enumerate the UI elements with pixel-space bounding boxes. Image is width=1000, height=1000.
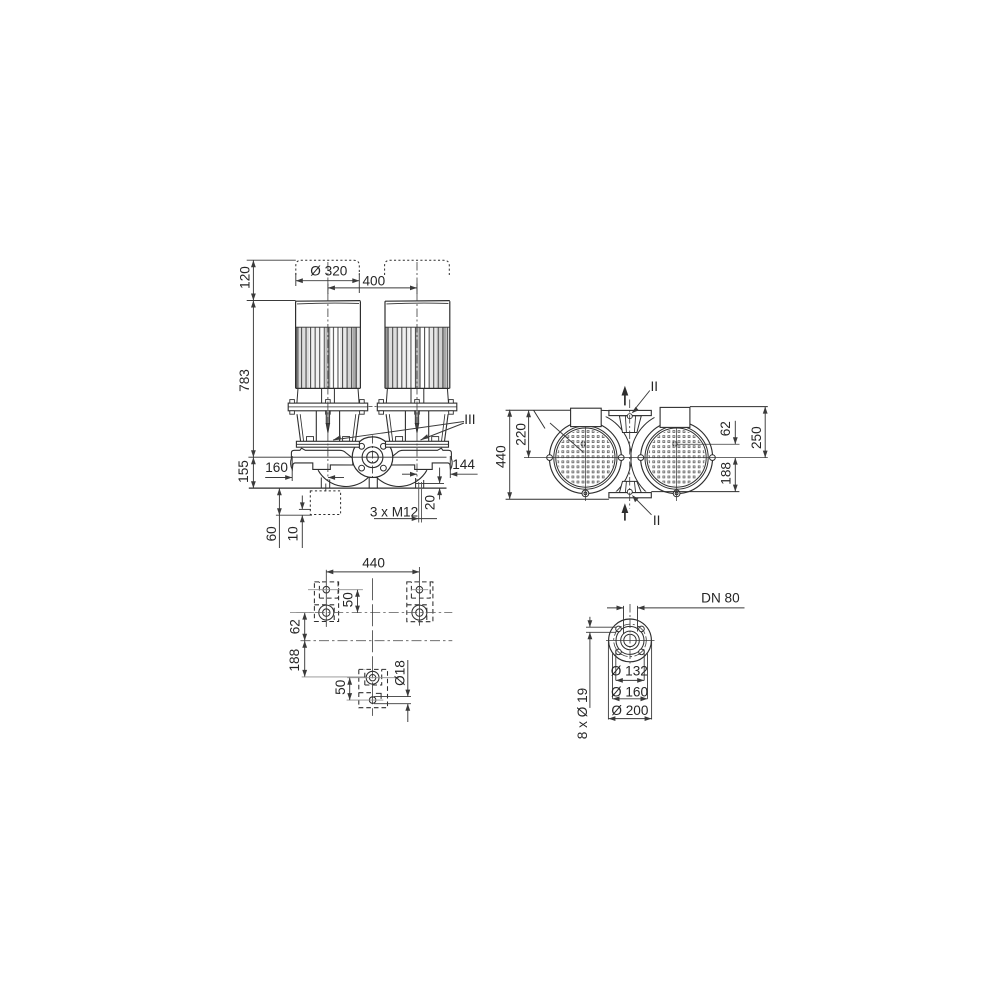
svg-text:II: II [651,379,659,394]
svg-text:Ø 200: Ø 200 [611,703,648,718]
svg-text:60: 60 [264,526,279,542]
svg-text:III: III [464,412,475,427]
svg-text:10: 10 [286,526,301,542]
svg-text:220: 220 [513,423,528,446]
svg-text:Ø18: Ø18 [393,660,408,686]
svg-text:155: 155 [236,460,251,483]
svg-text:440: 440 [494,445,509,468]
svg-text:188: 188 [718,462,733,485]
svg-text:440: 440 [362,556,385,571]
svg-text:188: 188 [287,649,302,672]
svg-text:50: 50 [333,679,348,695]
svg-text:DN 80: DN 80 [701,590,740,605]
svg-text:160: 160 [265,460,288,475]
svg-text:20: 20 [423,495,438,511]
svg-text:Ø 132: Ø 132 [611,664,648,679]
svg-text:8 x Ø 19: 8 x Ø 19 [575,688,590,739]
svg-text:144: 144 [452,457,475,472]
svg-text:250: 250 [749,426,764,449]
svg-text:62: 62 [288,619,303,634]
svg-text:400: 400 [362,274,385,289]
svg-text:62: 62 [718,421,733,436]
svg-text:50: 50 [341,592,356,608]
svg-text:II: II [653,513,661,528]
svg-text:3 x M12: 3 x M12 [370,505,418,520]
svg-text:783: 783 [237,369,252,392]
svg-text:Ø 320: Ø 320 [310,263,347,278]
svg-text:120: 120 [237,266,252,289]
